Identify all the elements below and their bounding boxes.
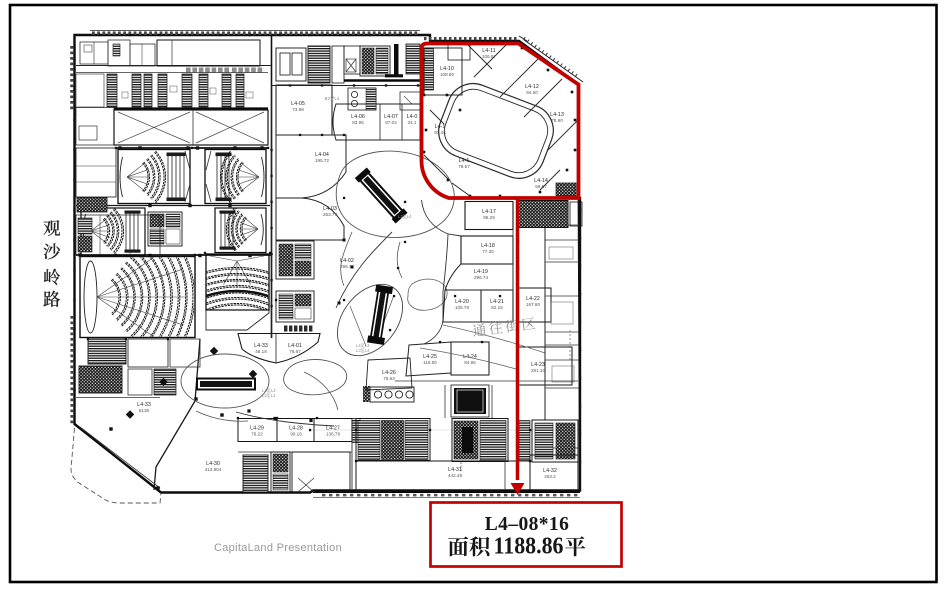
svg-text:79.57: 79.57 [458,164,470,169]
svg-text:136.79: 136.79 [326,432,340,437]
svg-text:84.85: 84.85 [464,360,476,365]
svg-text:48.18: 48.18 [255,349,267,354]
svg-text:296.74: 296.74 [474,275,488,280]
svg-text:B2至L4: B2至L4 [325,96,340,101]
svg-text:263.77: 263.77 [323,212,337,217]
svg-text:78.90: 78.90 [551,118,563,123]
svg-text:76.22: 76.22 [251,432,263,437]
svg-text:59.87: 59.87 [535,184,547,189]
svg-text:281.10: 281.10 [531,368,545,373]
svg-text:94.50: 94.50 [526,90,538,95]
svg-text:108.80: 108.80 [440,72,454,77]
svg-text:118.50: 118.50 [423,360,437,365]
svg-text:263.2: 263.2 [544,474,556,479]
svg-text:442.49: 442.49 [448,473,462,478]
svg-text:1188.86: 1188.86 [494,534,564,560]
svg-text:L4–08*16: L4–08*16 [485,514,569,535]
svg-text:83.95: 83.95 [352,120,364,125]
svg-text:106.87: 106.87 [482,54,496,59]
svg-text:90.16: 90.16 [290,432,302,437]
svg-text:91.44: 91.44 [434,130,446,135]
svg-text:87.04: 87.04 [385,120,397,125]
svg-text:105.78: 105.78 [455,305,469,310]
svg-text:L3至L4: L3至L4 [398,214,412,219]
svg-text:5136: 5136 [139,408,150,413]
svg-text:167.80: 167.80 [526,302,540,307]
svg-text:95.29: 95.29 [483,215,495,220]
svg-text:CapitaLand Presentation: CapitaLand Presentation [214,542,342,554]
svg-text:76.67: 76.67 [289,349,301,354]
svg-text:78.63: 78.63 [383,376,395,381]
svg-text:195.72: 195.72 [315,158,329,163]
svg-text:73.98: 73.98 [292,107,304,112]
svg-text:82.15: 82.15 [491,305,503,310]
svg-text:34.1: 34.1 [408,120,417,125]
svg-text:413.804: 413.804 [205,467,222,472]
svg-text:77.30: 77.30 [482,249,494,254]
svg-text:L3至L4: L3至L4 [356,348,370,353]
